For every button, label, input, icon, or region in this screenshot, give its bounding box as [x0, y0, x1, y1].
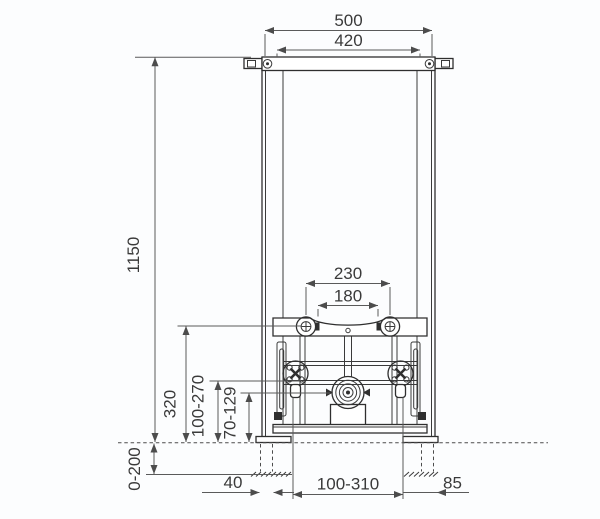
frame-body — [244, 57, 453, 443]
dim-420: 420 — [277, 31, 420, 57]
dim-1150-label: 1150 — [124, 237, 143, 274]
dim-40-label: 40 — [224, 473, 243, 492]
dim-180-label: 180 — [334, 287, 362, 306]
clamp-right — [418, 412, 426, 420]
clamp-left — [274, 412, 282, 420]
dim-100-270-label: 100-270 — [189, 375, 208, 437]
installation-frame-diagram: 500 420 1150 230 180 320 — [0, 0, 600, 519]
dim-85: 85 — [403, 474, 469, 493]
dim-1150: 1150 — [124, 57, 251, 442]
bottom-crossbar — [273, 425, 427, 434]
water-connection-left — [283, 361, 308, 398]
dim-320-label: 320 — [161, 390, 180, 418]
support-foot-left — [256, 437, 291, 443]
dim-230-label: 230 — [334, 264, 362, 283]
leg-extension-right — [404, 444, 438, 477]
technical-drawing-page: 500 420 1150 230 180 320 — [0, 0, 600, 519]
dim-100-310-label: 100-310 — [317, 475, 379, 494]
leg-extension-left — [251, 444, 291, 477]
dim-100-310: 100-310 — [293, 475, 403, 495]
ground-hatch-right — [404, 472, 438, 477]
dim-0-200: 0-200 — [125, 444, 292, 491]
dim-0-200-label: 0-200 — [125, 447, 144, 490]
dim-85-label: 85 — [443, 474, 462, 493]
dim-180: 180 — [318, 287, 378, 317]
dim-40: 40 — [202, 473, 294, 493]
dim-500-label: 500 — [334, 11, 362, 30]
dim-70-129-label: 70-129 — [221, 387, 240, 440]
dim-420-label: 420 — [334, 31, 362, 50]
support-foot-right — [403, 437, 438, 443]
top-crossbar — [244, 57, 453, 71]
